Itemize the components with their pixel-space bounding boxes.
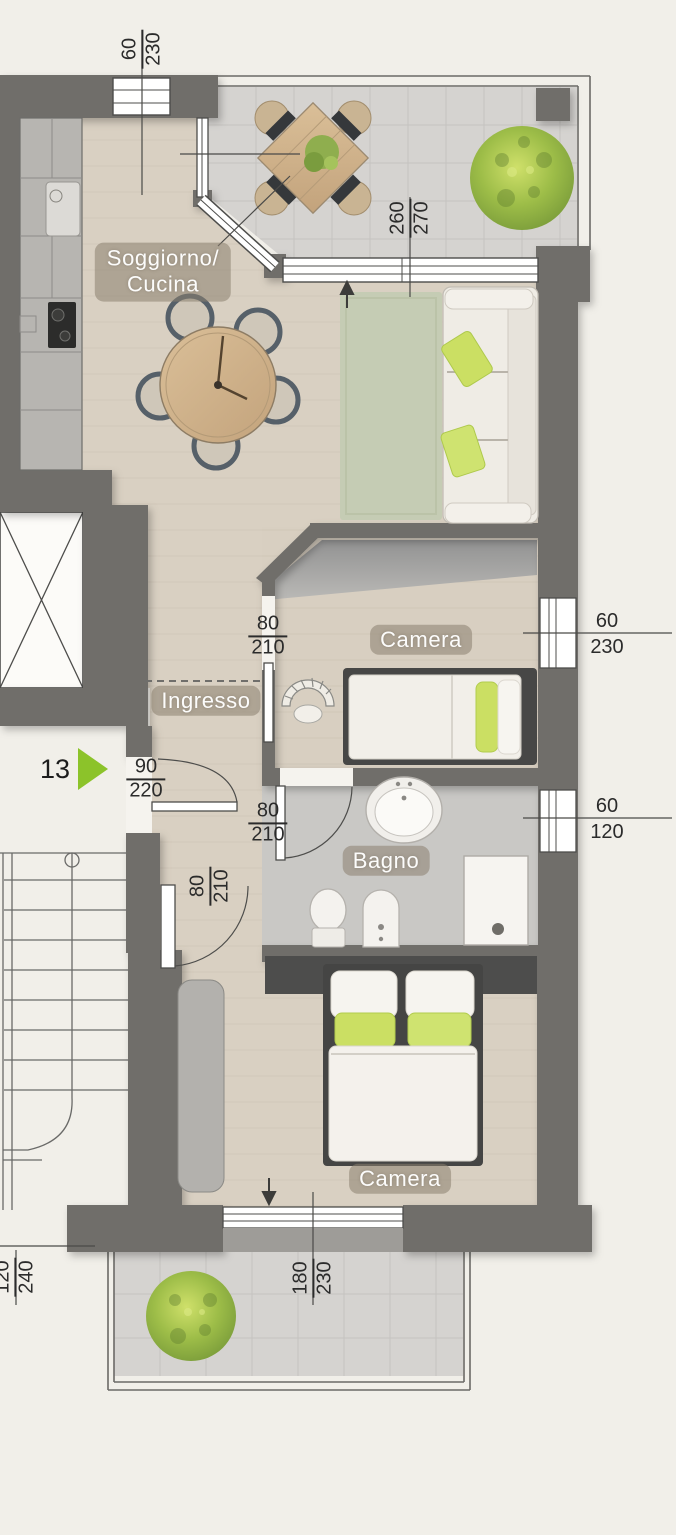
dim-bedroom2-door: 80 210 [187, 866, 232, 905]
dim-top-window: 60 230 [119, 29, 164, 68]
terrace-dining-set [255, 101, 371, 215]
bidet [363, 890, 399, 947]
kitchen-counter [20, 118, 82, 470]
unit-marker-arrow-icon [78, 748, 108, 790]
bay-window-vertical [197, 118, 208, 197]
bedroom1-bed [343, 668, 537, 765]
balcony-tree [146, 1271, 236, 1361]
sofa-armrest [445, 503, 531, 523]
dim-bedroom2-window: 180 230 [290, 1258, 335, 1297]
toilet [310, 889, 346, 947]
bed-pillow-green [476, 682, 498, 752]
dim-bathroom-door: 80 210 [248, 800, 287, 845]
kitchen-cooktop [48, 302, 76, 348]
room-label-bedroom1: Camera [370, 625, 472, 655]
dim-bedroom1-window-w: 60 [596, 611, 618, 631]
bedroom2-bed [323, 964, 483, 1166]
bathroom-window [540, 790, 576, 852]
unit-marker: 13 [40, 748, 108, 790]
elevator-shaft [0, 512, 83, 688]
bed-pillow-green [408, 1013, 471, 1047]
staircase [0, 853, 128, 1210]
bedroom2-side-wardrobe [178, 980, 224, 1192]
bed-pillow-green [335, 1013, 395, 1047]
sofa-backrest [508, 295, 536, 515]
room-label-bedroom2: Camera [349, 1164, 451, 1194]
dim-bathroom-window-h: 120 [590, 822, 623, 842]
shower-tray [464, 856, 528, 945]
living-rug [340, 292, 442, 520]
room-label-bathroom: Bagno [343, 846, 430, 876]
dim-bedroom1-door: 80 210 [248, 613, 287, 658]
dim-bathroom-window-w: 60 [596, 796, 618, 816]
unit-number: 13 [40, 754, 70, 785]
dim-entrance-door: 90 220 [126, 756, 165, 801]
sofa-armrest [445, 289, 533, 309]
bed-pillow [406, 971, 474, 1018]
bed-pillow [498, 680, 520, 754]
dim-bedroom1-window-h: 230 [590, 637, 623, 657]
room-label-entry: Ingresso [151, 686, 260, 716]
floorplan-canvas: Soggiorno/ Cucina Ingresso Camera Bagno … [0, 0, 676, 1535]
terrace-tree [470, 126, 574, 230]
sofa [440, 287, 538, 523]
dim-terrace-door: 260 270 [387, 198, 432, 237]
room-label-living: Soggiorno/ Cucina [95, 243, 231, 302]
bed-pillow [331, 971, 397, 1018]
dim-stairwell-window: 120 240 [0, 1257, 38, 1296]
kitchen-sink [46, 182, 80, 236]
